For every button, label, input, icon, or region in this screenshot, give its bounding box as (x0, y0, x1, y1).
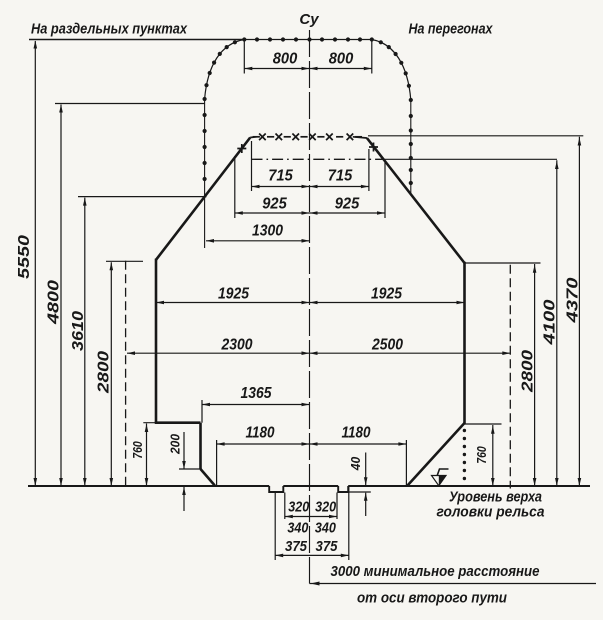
svg-text:Су: Су (299, 11, 319, 28)
svg-text:1180: 1180 (246, 425, 275, 442)
svg-text:2500: 2500 (371, 337, 403, 354)
svg-text:головки рельса: головки рельса (437, 505, 545, 521)
svg-text:На перегонах: На перегонах (409, 21, 494, 38)
svg-text:375: 375 (316, 538, 339, 555)
svg-text:1365: 1365 (241, 385, 272, 402)
svg-text:3610: 3610 (70, 311, 87, 351)
svg-text:40: 40 (348, 456, 363, 471)
svg-text:4800: 4800 (46, 280, 63, 326)
svg-text:от оси второго пути: от оси второго пути (357, 590, 507, 607)
svg-text:2300: 2300 (221, 337, 253, 354)
svg-text:1180: 1180 (342, 425, 371, 442)
svg-text:2800: 2800 (520, 350, 537, 394)
svg-text:3000 минимальное расстояние: 3000 минимальное расстояние (331, 563, 540, 580)
svg-text:760: 760 (475, 446, 489, 464)
svg-text:800: 800 (329, 51, 354, 68)
svg-text:200: 200 (169, 434, 183, 455)
svg-text:320: 320 (288, 499, 310, 516)
svg-text:925: 925 (262, 196, 287, 213)
svg-text:715: 715 (328, 168, 353, 185)
svg-text:320: 320 (315, 499, 337, 516)
svg-text:На раздельных пунктах: На раздельных пунктах (31, 21, 187, 38)
svg-text:Уровень верха: Уровень верха (449, 490, 542, 506)
svg-text:375: 375 (285, 538, 308, 555)
svg-text:760: 760 (131, 441, 145, 459)
svg-text:5550: 5550 (16, 235, 33, 279)
svg-text:2800: 2800 (96, 351, 113, 395)
svg-text:925: 925 (335, 196, 360, 213)
svg-text:800: 800 (273, 51, 298, 68)
svg-text:1300: 1300 (252, 223, 283, 240)
svg-text:4370: 4370 (565, 277, 582, 324)
svg-text:340: 340 (315, 520, 337, 537)
svg-text:1925: 1925 (371, 286, 402, 303)
svg-text:715: 715 (268, 168, 293, 185)
svg-text:340: 340 (287, 520, 309, 537)
svg-text:4100: 4100 (542, 299, 559, 346)
svg-text:1925: 1925 (218, 286, 249, 303)
